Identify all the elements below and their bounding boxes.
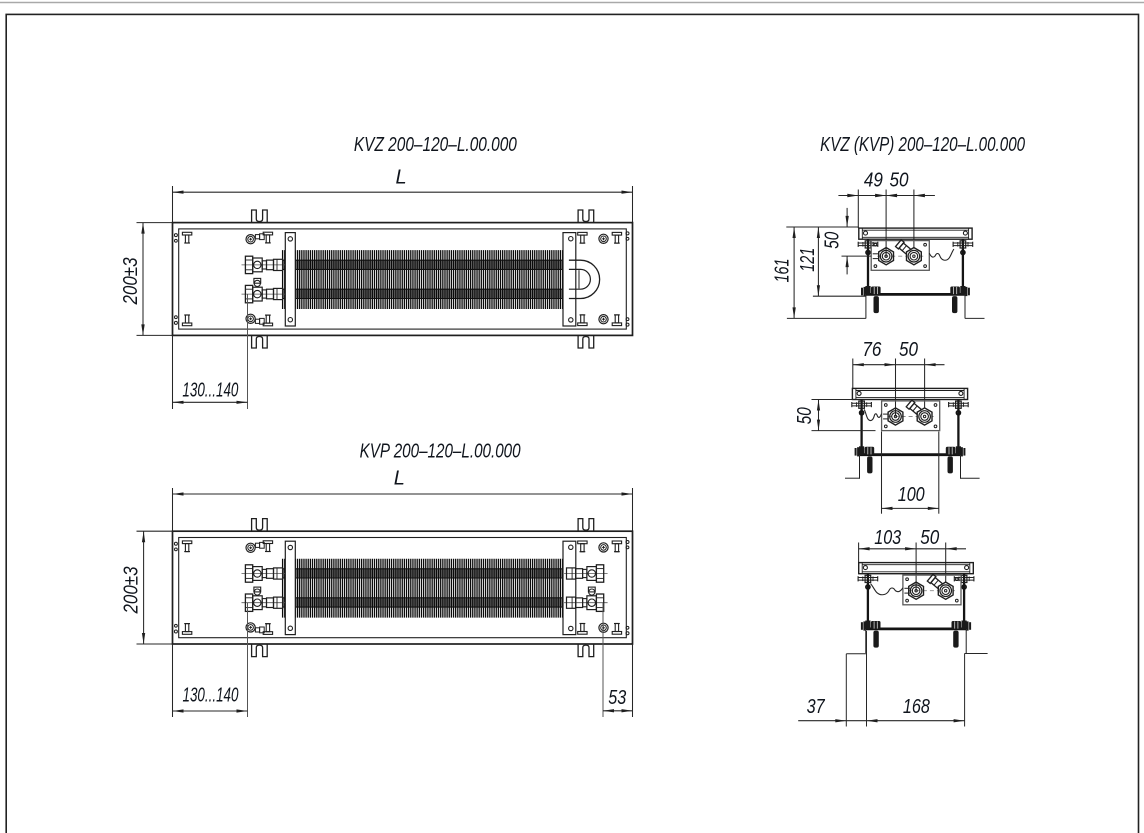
svg-text:50: 50: [920, 527, 939, 549]
svg-text:50: 50: [890, 170, 909, 192]
svg-text:KVP 200–120–L.00.000: KVP 200–120–L.00.000: [360, 441, 521, 463]
svg-text:168: 168: [903, 696, 930, 718]
svg-text:50: 50: [794, 407, 816, 424]
svg-text:100: 100: [898, 484, 925, 506]
svg-text:50: 50: [822, 232, 844, 249]
svg-text:121: 121: [797, 248, 819, 272]
svg-text:L: L: [394, 467, 405, 489]
svg-text:103: 103: [874, 527, 901, 549]
svg-text:130...140: 130...140: [183, 685, 239, 707]
svg-text:KVZ 200–120–L.00.000: KVZ 200–120–L.00.000: [354, 134, 517, 156]
svg-text:200±3: 200±3: [120, 567, 142, 615]
svg-text:L: L: [395, 167, 406, 189]
svg-text:76: 76: [862, 339, 882, 361]
svg-text:200±3: 200±3: [120, 258, 142, 306]
svg-text:49: 49: [864, 170, 883, 192]
svg-text:37: 37: [807, 696, 826, 718]
svg-text:50: 50: [899, 339, 918, 361]
svg-text:53: 53: [608, 687, 626, 709]
svg-text:KVZ (KVP) 200–120–L.00.000: KVZ (KVP) 200–120–L.00.000: [820, 134, 1025, 156]
svg-text:161: 161: [772, 259, 794, 283]
svg-text:130...140: 130...140: [182, 379, 238, 401]
